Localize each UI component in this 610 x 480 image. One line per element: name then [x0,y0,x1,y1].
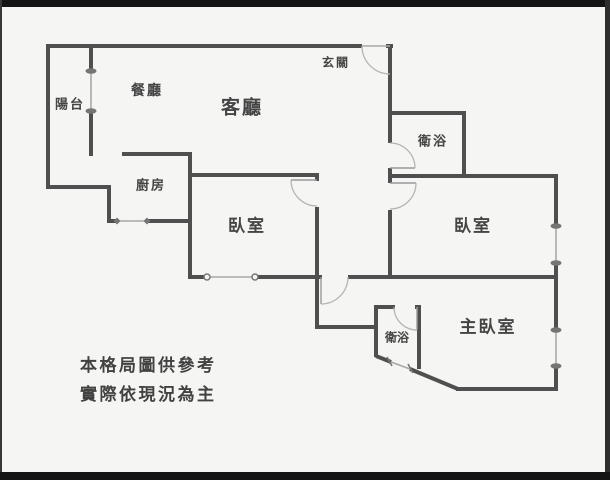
room-label-bedroom-right: 臥室 [454,212,492,237]
bedroom-left-door-arc [291,180,317,206]
room-label-living: 客廳 [221,93,263,120]
disclaimer-text: 本格局圖供參考 實際依現況為主 [80,351,217,409]
window-marker [86,68,97,74]
window-marker [551,363,562,369]
door-end-marker [143,217,150,224]
room-label-master-bedroom: 主臥室 [460,313,517,338]
master-door-arc [321,277,348,304]
disclaimer-line-1: 本格局圖供參考 [80,351,217,380]
window-end-marker [252,274,258,280]
window-marker [551,260,562,266]
entry-door-arc [362,46,390,74]
window-end-marker [204,274,210,280]
room-label-entry: 玄關 [322,54,350,71]
diagonal-window [391,362,410,369]
room-label-bath-lower: 衛浴 [385,329,409,346]
window-marker [551,327,562,333]
room-label-bedroom-left: 臥室 [228,212,266,237]
letterbox-bottom-bar [0,472,610,480]
bedroom-right-door-arc [390,183,416,209]
floorplan-image: 陽台 餐廳 客廳 玄關 衛浴 廚房 臥室 臥室 主臥室 衛浴 本格局圖供參考 實… [0,0,610,480]
window-marker [551,223,562,229]
room-label-balcony: 陽台 [55,94,85,113]
room-label-kitchen: 廚房 [136,175,166,194]
door-arcs [291,46,417,330]
bath-lower-door-arc [394,307,417,330]
room-label-bath-upper: 衛浴 [418,131,448,150]
door-end-marker [113,217,120,224]
window-marker [86,108,97,114]
wall-diagonal-b [410,369,458,389]
disclaimer-line-2: 實際依現況為主 [80,380,217,409]
door-leaves [291,168,417,330]
room-label-dining: 餐廳 [131,80,163,100]
bath-upper-door-arc [390,143,415,168]
